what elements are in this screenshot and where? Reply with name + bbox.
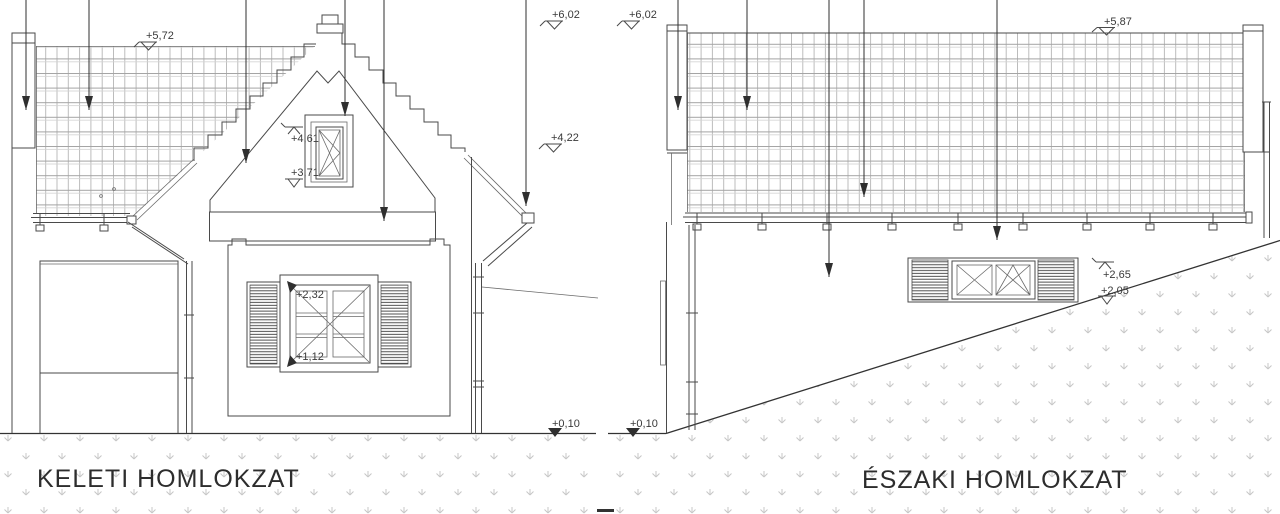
level-label: +5,87 [1104,16,1132,28]
level-label: +2,05 [1101,285,1129,297]
chimney-right-elevation-left [667,25,687,225]
gutter-right-elevation [683,212,1252,230]
level-label: +3,71 [291,167,319,179]
shutter-left [912,260,948,300]
wall-right-elevation [661,222,699,433]
level-label: +2,65 [1103,269,1131,281]
level-label: +6,02 [629,9,657,21]
terrain-connector-line [482,287,598,298]
drawing-sheet: +5,72 +6,02 +4,22 +4,61 +3,71 +2,32 +1,1… [0,0,1280,514]
marker-ridge-right-elevation-left: +6,02 [617,9,657,29]
facade-title-right: ÉSZAKI HOMLOKZAT [862,465,1128,494]
ridge-finial [322,15,338,24]
level-label: +5,72 [146,30,174,42]
marker-window-top-right-elevation: +2,65 [1092,258,1131,281]
facade-title-left: KELETI HOMLOKZAT [37,465,300,493]
marker-eave: +4,22 [539,132,579,152]
downpipe-left [128,222,194,433]
shuttered-window-right-elevation [908,258,1078,302]
marker-ridge-right-elevation-right: +5,87 [1092,16,1132,35]
level-label: +4,61 [291,133,319,145]
level-label: +4,22 [551,132,579,144]
downpipe-right [473,213,534,433]
sheet-fold-mark [597,509,614,512]
chimney-right-elevation-right [1243,25,1271,238]
chimney-left [12,33,35,433]
shutter-right [378,282,411,367]
level-label: +6,02 [552,9,580,21]
elevation-drawings: +5,72 +6,02 +4,22 +4,61 +3,71 +2,32 +1,1… [0,0,1280,514]
marker-window-top-label: +2,32 [296,289,324,301]
roof-tile-grid-right [687,33,1245,212]
left-elevation [12,15,534,433]
marker-ridge-left-elevation: +6,02 [540,9,580,29]
shutter-left [247,282,280,367]
garage-annex [40,261,178,433]
marker-window-bottom-label: +1,12 [296,351,324,363]
roof-tile-grid-left-wing [36,46,316,217]
shuttered-window-left-elevation [247,275,411,372]
shutter-right [1038,260,1074,300]
